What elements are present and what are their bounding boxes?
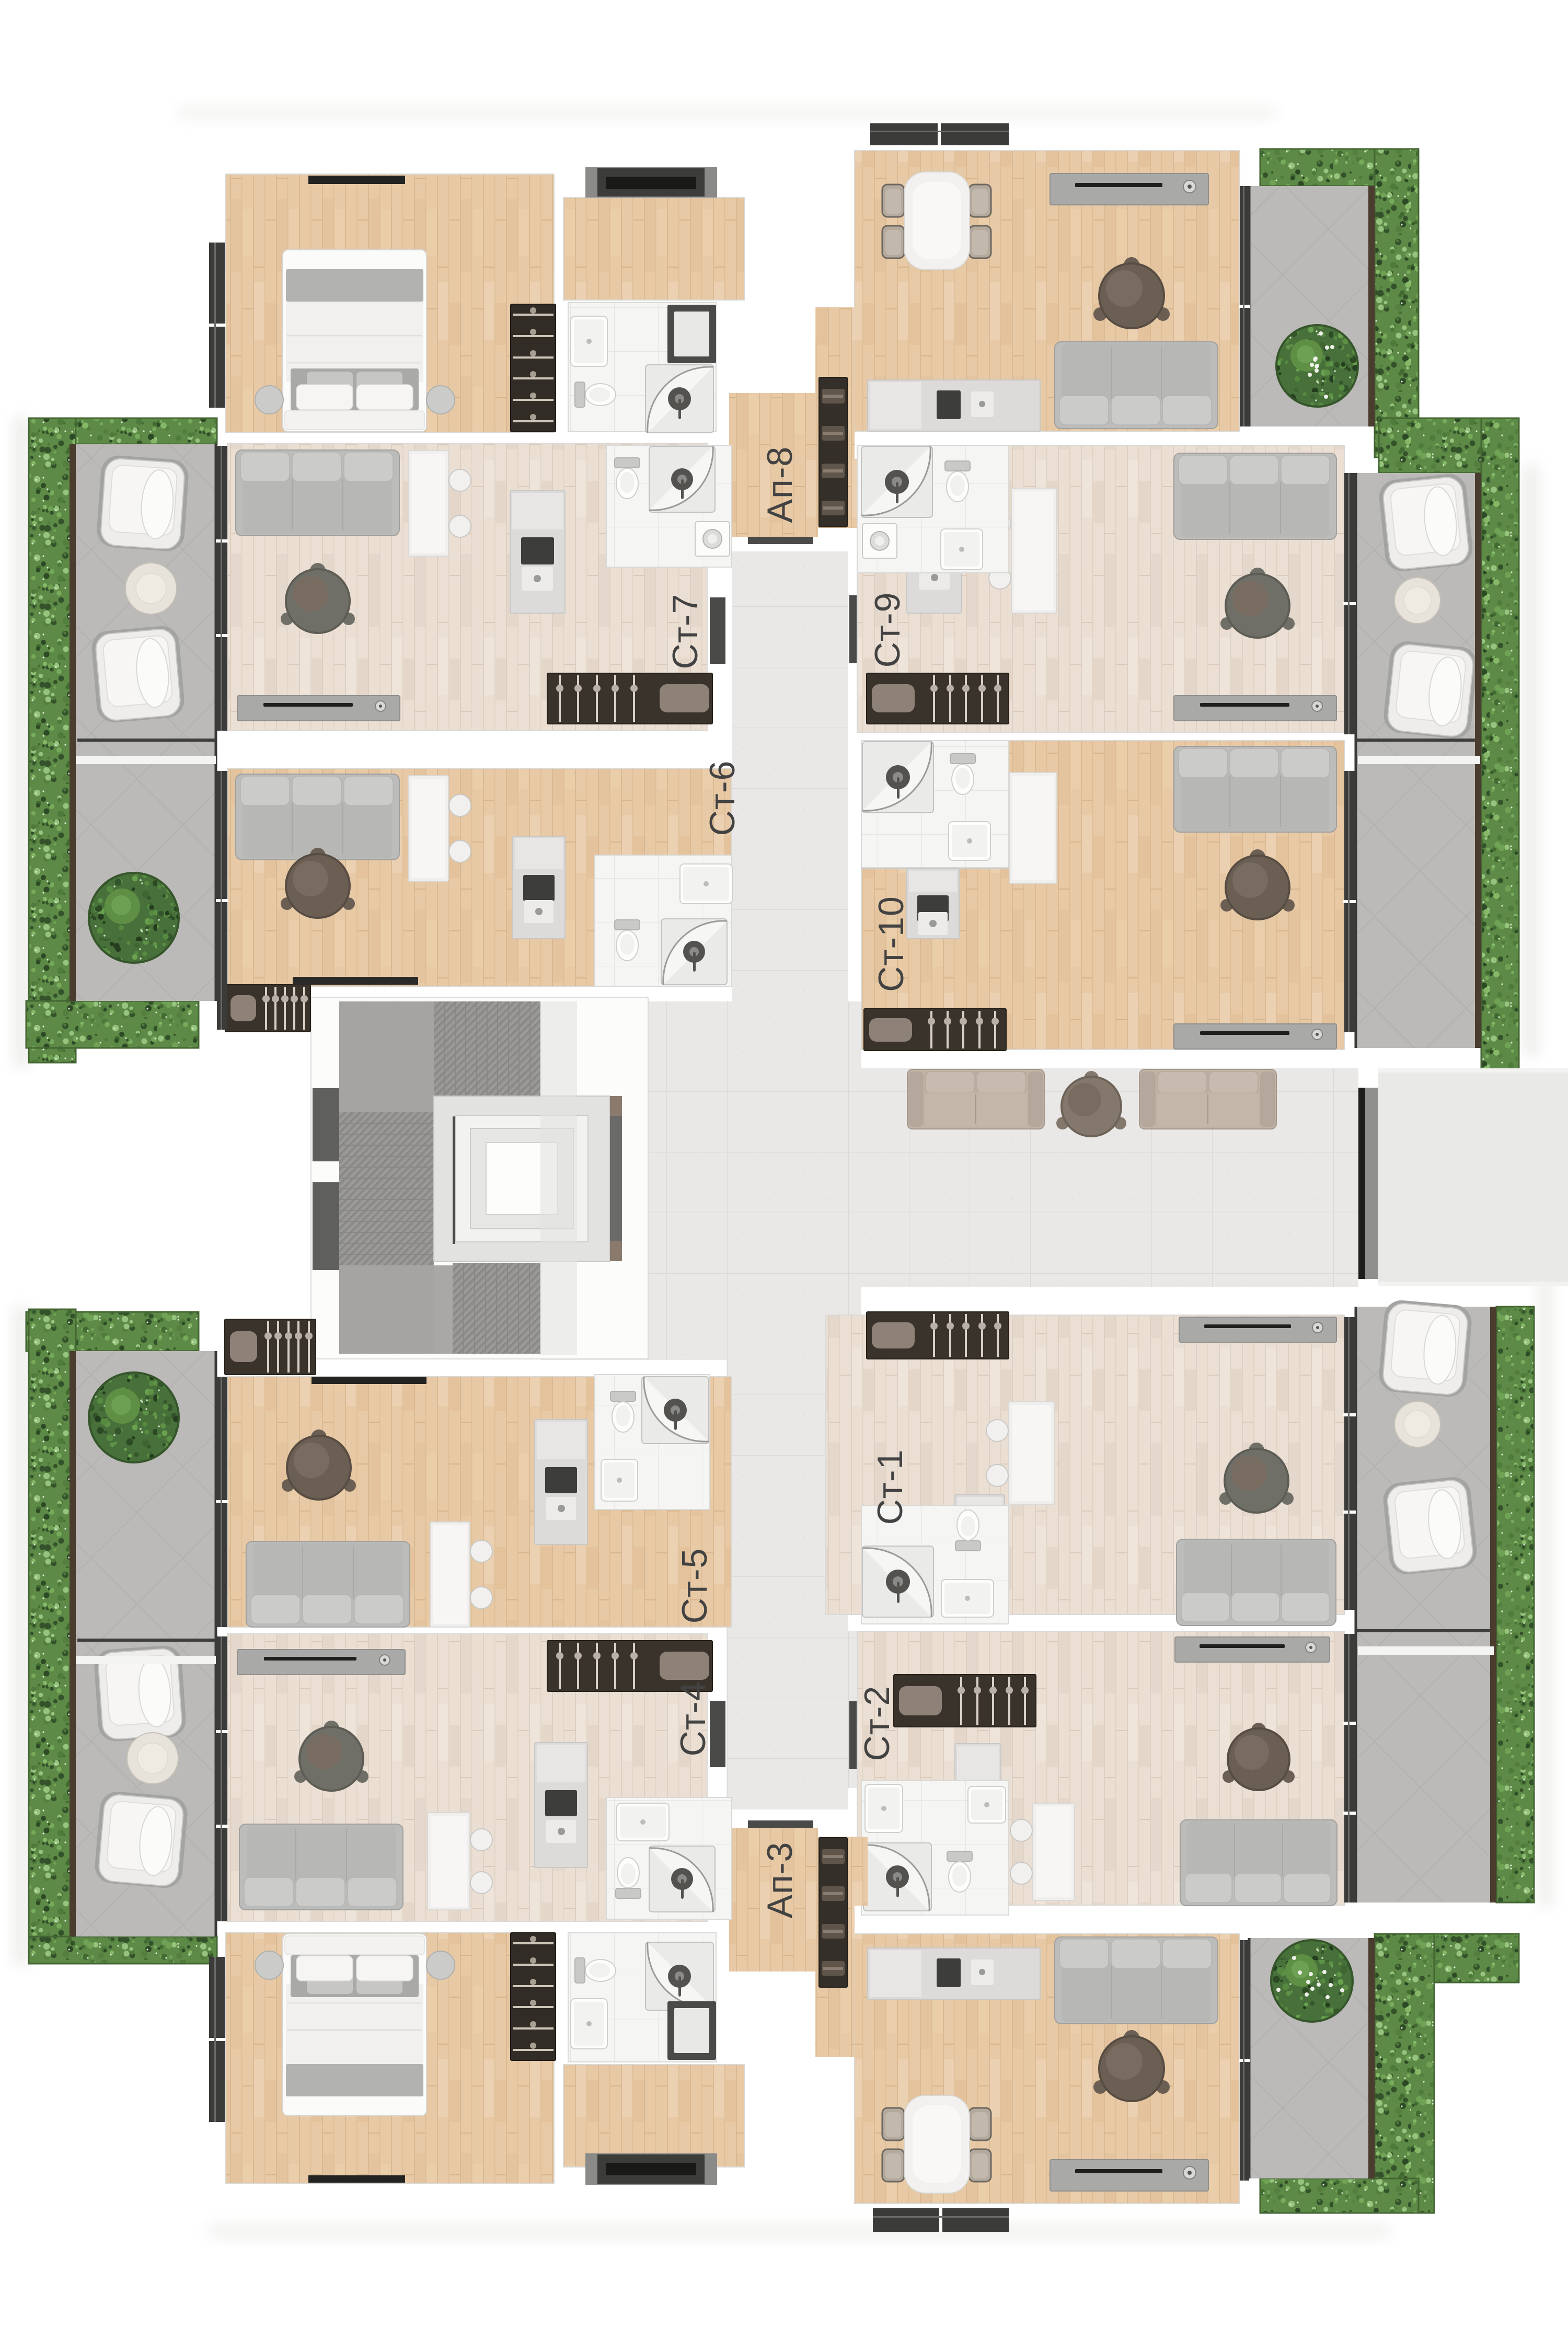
svg-text:Ст-6: Ст-6 xyxy=(702,760,742,836)
svg-text:Ап-3: Ап-3 xyxy=(760,1842,800,1919)
svg-text:Ст-5: Ст-5 xyxy=(675,1548,714,1624)
svg-text:Ст-4: Ст-4 xyxy=(673,1681,713,1757)
svg-text:Ст-7: Ст-7 xyxy=(665,594,705,670)
svg-text:Ап-8: Ап-8 xyxy=(760,446,800,523)
svg-text:Ст-2: Ст-2 xyxy=(857,1686,897,1761)
svg-text:Ст-10: Ст-10 xyxy=(871,896,911,992)
svg-text:Ст-1: Ст-1 xyxy=(870,1449,910,1525)
svg-text:Ст-9: Ст-9 xyxy=(868,592,907,668)
